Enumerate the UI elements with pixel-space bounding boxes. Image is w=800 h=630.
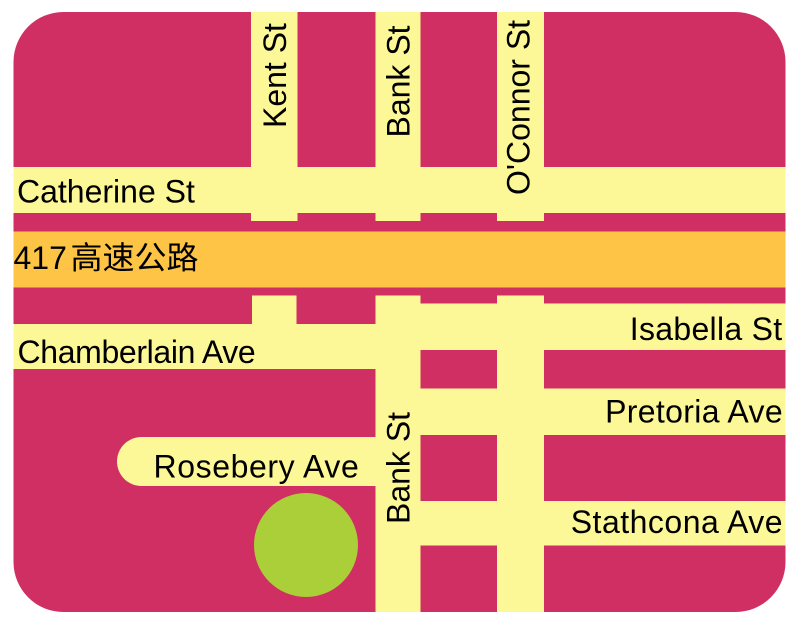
svg-text:Stathcona Ave: Stathcona Ave bbox=[571, 504, 783, 540]
svg-text:Rosebery Ave: Rosebery Ave bbox=[154, 449, 360, 485]
svg-text:O'Connor St: O'Connor St bbox=[501, 20, 537, 195]
svg-text:Bank St: Bank St bbox=[381, 412, 417, 524]
svg-text:Chamberlain Ave: Chamberlain Ave bbox=[18, 334, 256, 370]
svg-text:Isabella St: Isabella St bbox=[630, 311, 783, 347]
svg-text:Bank St: Bank St bbox=[381, 25, 417, 137]
svg-text:417: 417 bbox=[14, 240, 67, 276]
svg-text:Catherine St: Catherine St bbox=[17, 174, 195, 210]
svg-text:Pretoria Ave: Pretoria Ave bbox=[605, 394, 783, 430]
svg-text:Kent St: Kent St bbox=[257, 23, 293, 128]
